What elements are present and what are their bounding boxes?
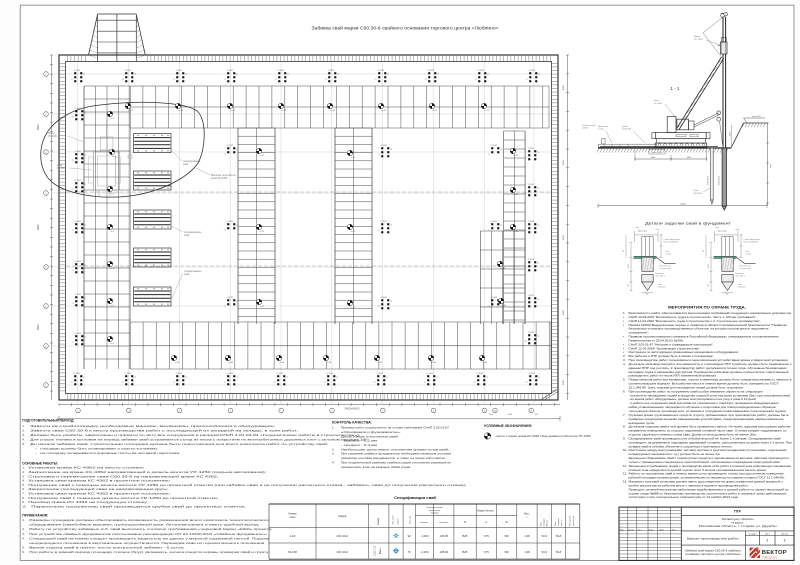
svg-text:Молот: Молот (48, 133, 56, 135)
svg-text:10.: 10. (22, 504, 26, 508)
svg-text:5 2002: 5 2002 (74, 373, 81, 375)
svg-text:12: 12 (185, 74, 187, 76)
svg-text:12: 12 (487, 74, 489, 76)
svg-text:17: 17 (526, 79, 528, 81)
svg-text:Детали заделки свай в фундамен: Детали заделки свай в фундамент (645, 221, 731, 226)
svg-text:-0,150: -0,150 (666, 253, 671, 255)
svg-text:2: 2 (128, 410, 129, 412)
svg-text:Ж: Ж (45, 267, 47, 269)
svg-text:8000: 8000 (563, 84, 565, 90)
svg-text:2.: 2. (22, 428, 25, 432)
svg-text:109,35: 109,35 (440, 534, 449, 538)
svg-text:6000: 6000 (508, 414, 512, 416)
svg-text:5 2002: 5 2002 (477, 373, 484, 375)
svg-text:12: 12 (286, 377, 288, 379)
svg-text:5 2002: 5 2002 (74, 70, 81, 72)
svg-text:8: 8 (433, 410, 434, 412)
svg-text:Стадия: Стадия (749, 534, 757, 536)
svg-text:69,8: 69,8 (556, 550, 562, 554)
svg-text:В25: В25 (463, 550, 468, 554)
svg-text:17: 17 (324, 382, 326, 384)
svg-text:17: 17 (122, 382, 124, 384)
svg-text:на площадку укладываются дорож: на площадку укладываются дорожные плиты … (40, 451, 180, 455)
svg-text:3000: 3000 (708, 264, 710, 268)
svg-text:отм.: отм. (656, 229, 660, 231)
svg-text:–: – (35, 447, 37, 451)
svg-text:17: 17 (72, 303, 74, 305)
svg-text:ж.б ростверк: ж.б ростверк (660, 268, 671, 270)
svg-text:Должны быть разбиты, закреплен: Должны быть разбиты, закреплены и принят… (30, 433, 360, 437)
svg-text:5 2002: 5 2002 (491, 221, 498, 223)
svg-text:5.: 5. (22, 546, 25, 550)
svg-text:12: 12 (500, 149, 502, 151)
svg-text:С60.30-6: С60.30-6 (738, 286, 746, 288)
svg-text:плиты: плиты (598, 129, 604, 131)
svg-text:12: 12 (236, 225, 238, 227)
svg-text:1.011.1-10: 1.011.1-10 (375, 545, 377, 557)
svg-text:отм.: отм. (736, 229, 740, 231)
svg-text:Кран: Кран (654, 100, 660, 102)
svg-text:12: 12 (236, 377, 238, 379)
svg-text:12: 12 (537, 336, 539, 338)
svg-text:12: 12 (84, 337, 86, 339)
svg-text:17: 17 (525, 193, 527, 195)
svg-text:отм.-1,350: отм.-1,350 (652, 152, 663, 154)
svg-text:9600: 9600 (37, 324, 40, 330)
svg-text:5 2002: 5 2002 (75, 108, 82, 110)
svg-text:12: 12 (84, 225, 86, 227)
svg-text:примеч., см: примеч., см (573, 515, 575, 526)
svg-text:12: 12 (83, 377, 85, 379)
svg-text:УР-1250: УР-1250 (694, 39, 703, 41)
svg-text:бетон В7,5: бетон В7,5 (736, 275, 745, 277)
svg-text:•: • (623, 323, 624, 327)
svg-text:12.: 12. (623, 472, 627, 476)
svg-text:С60.30-6: С60.30-6 (708, 175, 710, 185)
svg-text:3.: 3. (332, 452, 335, 456)
svg-text:17: 17 (71, 382, 73, 384)
svg-text:свай: свай (184, 234, 190, 237)
svg-text:12: 12 (236, 149, 238, 151)
svg-text:13.: 13. (623, 480, 627, 484)
svg-text:5 2002: 5 2002 (125, 70, 132, 72)
svg-text:5 2002: 5 2002 (278, 70, 285, 72)
svg-text:Г: Г (45, 385, 46, 387)
svg-text:Дорожные: Дорожные (598, 126, 609, 128)
svg-text:Вып.8 (350х350): Вып.8 (350х350) (664, 242, 679, 244)
svg-text:5 2002: 5 2002 (227, 70, 234, 72)
svg-text:12: 12 (500, 225, 502, 227)
svg-text:1-92: 1-92 (290, 534, 296, 538)
svg-text:Лист: Лист (765, 534, 770, 536)
svg-text:Вес,: Вес, (524, 512, 529, 516)
svg-text:17: 17 (224, 79, 226, 81)
svg-text:17: 17 (378, 306, 380, 308)
svg-text:С60.30-6: С60.30-6 (693, 193, 703, 195)
svg-text:ПРОЕКТ: ПРОЕКТ (762, 555, 777, 559)
svg-text:Подп.: Подп. (659, 529, 664, 531)
svg-text:Арматура: Арматура (718, 230, 728, 233)
svg-text:При работе в зимний период пло: При работе в зимний период площадку стоя… (29, 550, 269, 554)
svg-text:КОНТРОЛЬ КАЧЕСТВА:: КОНТРОЛЬ КАЧЕСТВА: (332, 421, 372, 425)
svg-text:- средних - 0,4 мм: - средних - 0,4 мм (341, 443, 377, 447)
svg-text:3.: 3. (22, 532, 25, 536)
svg-text:5.: 5. (623, 378, 626, 382)
svg-text:относит.: относит. (420, 522, 429, 524)
svg-text:8000: 8000 (563, 379, 565, 385)
svg-text:свай: свай (184, 273, 190, 276)
svg-text:ПГР: ПГР (734, 510, 741, 514)
svg-text:11.: 11. (623, 464, 627, 468)
svg-text:Лист: Лист (638, 529, 642, 531)
svg-text:МЕРОПРИЯТИЯ ПО ОХРАНЕ ТРУДА.: МЕРОПРИЯТИЯ ПО ОХРАНЕ ТРУДА. (668, 306, 746, 310)
svg-text:12: 12 (84, 298, 86, 300)
svg-text:5 2002: 5 2002 (227, 145, 234, 147)
svg-text:17: 17 (275, 79, 277, 81)
svg-text:5 2002: 5 2002 (227, 373, 234, 375)
svg-text:12: 12 (84, 265, 86, 267)
svg-text:неоднородного положения в верт: неоднородного положения в вертикальное о… (29, 541, 264, 545)
svg-text:17: 17 (526, 382, 528, 384)
svg-text:ж.б ростверк: ж.б ростверк (740, 268, 751, 270)
svg-text:1,38: 1,38 (524, 534, 530, 538)
svg-text:12: 12 (134, 377, 136, 379)
svg-text:5 2002: 5 2002 (75, 180, 82, 182)
svg-text:забивки: забивки (431, 513, 440, 515)
svg-text:54000=54000: 54000=54000 (345, 407, 360, 410)
svg-text:Следующей свай на номер следуе: Следующей свай на номер следует производ… (29, 536, 269, 540)
svg-text:17: 17 (173, 382, 175, 384)
svg-text:300: 300 (726, 294, 729, 296)
svg-text:17: 17 (224, 382, 226, 384)
svg-text:3000: 3000 (489, 414, 493, 416)
svg-text:11: 11 (530, 410, 532, 412)
svg-text:Листов: Листов (781, 534, 789, 536)
svg-text:12: 12 (390, 301, 392, 303)
svg-text:17: 17 (72, 189, 74, 191)
svg-text:17: 17 (71, 79, 73, 81)
svg-text:12: 12 (436, 377, 438, 379)
svg-text:При срывании свайных фундамент: При срывании свайных фундаментов необход… (341, 452, 451, 456)
svg-text:108,90: 108,90 (440, 550, 449, 554)
svg-text:5: 5 (281, 410, 282, 412)
svg-text:До начала забивки свай, строит: До начала забивки свай, строительная пло… (30, 442, 328, 446)
svg-text:Отметка головы: Отметка головы (426, 507, 443, 509)
svg-text:1 - 1: 1 - 1 (670, 86, 680, 91)
svg-text:Завезти сваи С60.30-6 к месту: Завезти сваи С60.30-6 к месту производст… (30, 428, 298, 432)
svg-text:нагрузка: нагрузка (544, 518, 546, 526)
svg-text:6.: 6. (623, 389, 626, 393)
svg-text:17: 17 (72, 160, 74, 162)
svg-text:12: 12 (287, 74, 289, 76)
svg-text:12: 12 (83, 74, 85, 76)
svg-text:оборудования (сваебойные машин: оборудования (сваебойные машины, грузопо… (29, 523, 259, 527)
svg-text:4.: 4. (22, 536, 25, 540)
svg-text:W6: W6 (504, 534, 509, 538)
svg-text:Вып.8 (350х350): Вып.8 (350х350) (744, 242, 759, 244)
svg-text:свай: свай (183, 163, 189, 166)
svg-text:абсолют.: абсолют. (439, 522, 448, 524)
svg-text:17: 17 (374, 382, 376, 384)
svg-text:250: 250 (708, 284, 710, 287)
svg-text:Вып.1: Вып.1 (380, 547, 382, 554)
svg-text:17: 17 (525, 230, 527, 232)
svg-text:-1,000: -1,000 (421, 534, 429, 538)
svg-text:•: • (623, 335, 624, 339)
svg-text:5 2002: 5 2002 (529, 70, 536, 72)
svg-text:17: 17 (375, 79, 377, 81)
svg-text:12: 12 (538, 377, 540, 379)
svg-text:Кол.уч: Кол.уч (629, 529, 635, 531)
svg-text:ПРИМЕЧАНИЯ:: ПРИМЕЧАНИЯ: (22, 514, 48, 518)
svg-text:12: 12 (538, 74, 540, 76)
svg-text:17: 17 (274, 382, 276, 384)
svg-text:5 2002: 5 2002 (427, 373, 434, 375)
svg-text:17: 17 (525, 157, 527, 159)
svg-text:основания торгового центра «Лю: основания торгового центра «Люблино» (685, 554, 742, 556)
svg-text:КС-4362: КС-4362 (654, 103, 663, 105)
svg-text:Допустимые отклонения свай:: Допустимые отклонения свай: (341, 434, 399, 438)
svg-text:5 2002: 5 2002 (75, 261, 82, 263)
svg-text:3.: 3. (22, 433, 25, 437)
svg-text:17: 17 (122, 79, 124, 81)
svg-text:12: 12 (337, 74, 339, 76)
svg-text:3000: 3000 (628, 264, 630, 268)
svg-text:F75: F75 (484, 550, 489, 554)
svg-text:12: 12 (437, 74, 439, 76)
svg-text:КС-4362: КС-4362 (57, 168, 67, 170)
svg-text:4: 4 (230, 410, 231, 412)
svg-text:17: 17 (525, 268, 527, 270)
svg-text:W6: W6 (504, 550, 509, 554)
svg-text:108.60: 108.60 (582, 128, 589, 130)
svg-text:Для спуска техники в котлован: Для спуска техники в котлован на период … (30, 438, 368, 442)
svg-text:Сваи: Сваи (693, 190, 699, 192)
svg-text:сущ.: сущ. (770, 163, 772, 168)
svg-text:5 2002: 5 2002 (491, 297, 498, 299)
svg-text:Арматура: Арматура (638, 230, 648, 233)
svg-text:4.: 4. (22, 438, 25, 442)
svg-text:Усл.особ.: Усл.особ. (393, 514, 395, 524)
svg-text:54,9: 54,9 (541, 550, 547, 554)
svg-text:8.: 8. (623, 425, 626, 429)
svg-text:5 2002: 5 2002 (478, 70, 485, 72)
svg-text:отм.0,00: отм.0,00 (752, 116, 761, 118)
svg-text:1.: 1. (22, 518, 25, 522)
svg-text:9.: 9. (623, 436, 626, 440)
svg-text:1.: 1. (332, 426, 335, 430)
svg-text:17: 17 (425, 79, 427, 81)
svg-text:12: 12 (390, 225, 392, 227)
svg-text:8000: 8000 (563, 159, 565, 165)
svg-text:5 2002: 5 2002 (378, 70, 385, 72)
svg-text:9600: 9600 (37, 124, 40, 130)
svg-text:5.: 5. (22, 442, 25, 446)
svg-text:17: 17 (325, 79, 327, 81)
svg-text:17: 17 (72, 270, 74, 272)
svg-text:УСЛОВНЫЕ ОБОЗНАЧЕНИЯ:: УСЛОВНЫЕ ОБОЗНАЧЕНИЯ: (484, 424, 532, 428)
svg-text:5 2002: 5 2002 (528, 184, 535, 186)
svg-text:92: 92 (408, 534, 412, 538)
svg-text:17: 17 (525, 341, 527, 343)
svg-text:–: – (35, 451, 37, 455)
svg-text:Расстояние,: Расстояние, (570, 515, 572, 526)
svg-text:17: 17 (72, 342, 74, 344)
svg-text:крана КС-4362: крана КС-4362 (211, 177, 228, 180)
svg-text:17: 17 (424, 382, 426, 384)
svg-text:5 2002: 5 2002 (328, 70, 335, 72)
svg-text:69,8: 69,8 (556, 534, 562, 538)
svg-text:5 2002: 5 2002 (381, 297, 388, 299)
svg-text:4.: 4. (332, 460, 335, 464)
svg-text:5 2002: 5 2002 (125, 373, 132, 375)
svg-text:5 2002: 5 2002 (528, 332, 535, 334)
svg-text:Работу по устройству забивных: Работу по устройству забивных ж.б. свай … (29, 527, 272, 531)
svg-text:1,38: 1,38 (524, 550, 530, 554)
svg-text:17: 17 (72, 230, 74, 232)
svg-text:6.: 6. (22, 550, 25, 554)
svg-text:3: 3 (179, 410, 180, 412)
svg-text:2: 2 (766, 539, 768, 543)
svg-text:Расч.: Расч. (541, 521, 543, 526)
svg-text:12: 12 (386, 377, 388, 379)
svg-text:12: 12 (537, 188, 539, 190)
svg-text:17: 17 (173, 79, 175, 81)
svg-text:5 2002: 5 2002 (227, 221, 234, 223)
svg-text:Кол.,шт.: Кол.,шт. (409, 515, 411, 523)
svg-text:250: 250 (628, 284, 630, 287)
svg-text:1: 1 (77, 410, 78, 412)
svg-text:5 2002: 5 2002 (277, 373, 284, 375)
svg-text:12: 12 (185, 377, 187, 379)
svg-text:25000: 25000 (680, 203, 687, 205)
svg-text:17: 17 (474, 382, 476, 384)
svg-text:С60.30-6: С60.30-6 (719, 175, 721, 185)
svg-text:2000х600: 2000х600 (622, 129, 632, 131)
svg-text:5 2002: 5 2002 (176, 373, 183, 375)
svg-text:ОСНОВНЫЕ РАБОТЫ:: ОСНОВНЫЕ РАБОТЫ: (22, 461, 58, 465)
svg-text:Паралельно погружению свай про: Паралельно погружению свай производится … (31, 504, 246, 508)
svg-text:17: 17 (72, 117, 74, 119)
svg-text:сваи: сваи (290, 516, 296, 519)
svg-text:12: 12 (387, 74, 389, 76)
svg-text:5 2002: 5 2002 (75, 221, 82, 223)
svg-text:4.: 4. (623, 362, 626, 366)
svg-text:безопасности опасных производс: безопасности опасных производственных об… (629, 327, 769, 331)
svg-text:2: 2 (784, 539, 786, 543)
svg-text:Молот: Молот (694, 36, 701, 38)
svg-text:Забивка свай марки С60.30-6 св: Забивка свай марки С60.30-6 свайного (685, 550, 742, 553)
svg-text:Расч.: Расч. (555, 521, 557, 526)
svg-text:Кран: Кран (57, 165, 63, 167)
svg-text:Забивка свай марки С60.30-6 св: Забивка свай марки С60.30-6 свайного осн… (312, 25, 499, 31)
svg-text:УР-1250: УР-1250 (48, 136, 58, 138)
svg-text:12: 12 (390, 149, 392, 151)
svg-text:5 2002: 5 2002 (381, 221, 388, 223)
svg-text:9: 9 (484, 410, 485, 412)
svg-text:12: 12 (84, 155, 86, 157)
svg-text:Марка бетона: Марка бетона (477, 510, 494, 513)
svg-text:Вел.,тс: Вел.,тс (547, 520, 549, 526)
svg-text:12: 12 (486, 377, 488, 379)
svg-text:С60.30-6: С60.30-6 (658, 286, 666, 288)
svg-text:5 2002: 5 2002 (327, 373, 334, 375)
svg-text:900: 900 (535, 414, 538, 416)
svg-text:Московская область, г. Старая: Московская область, г. Старая ул. Дружбы (699, 525, 777, 528)
svg-text:17: 17 (488, 306, 490, 308)
svg-text:17: 17 (224, 230, 226, 232)
svg-text:F75: F75 (484, 534, 489, 538)
svg-text:9600: 9600 (37, 224, 40, 230)
svg-text:12: 12 (84, 112, 86, 114)
svg-text:5 2002: 5 2002 (491, 145, 498, 147)
svg-text:Время отдыха свай в грунте, по: Время отдыха свай в грунте, после контро… (29, 546, 184, 550)
svg-text:Марка: Марка (338, 514, 346, 518)
svg-text:превышать 1см на каждые 100м р: превышать 1см на каждые 100м ряда. (341, 465, 411, 469)
svg-text:8000: 8000 (563, 309, 565, 315)
svg-text:5 2002: 5 2002 (529, 373, 536, 375)
svg-text:5 2002: 5 2002 (428, 70, 435, 72)
svg-text:50: 50 (623, 250, 625, 252)
svg-text:12: 12 (336, 377, 338, 379)
svg-text:5 2002: 5 2002 (528, 148, 535, 150)
svg-text:В25: В25 (463, 534, 468, 538)
svg-text:теплотрасс и при отрицательных: теплотрасс и при отрицательных температу… (629, 495, 739, 499)
svg-text:50: 50 (703, 250, 705, 252)
svg-text:12: 12 (537, 263, 539, 265)
svg-text:10: 10 (494, 410, 496, 412)
svg-text:17: 17 (224, 154, 226, 156)
svg-text:5 2002: 5 2002 (528, 221, 535, 223)
svg-text:-0,150: -0,150 (746, 253, 751, 255)
svg-text:12: 12 (537, 225, 539, 227)
svg-text:Завезти на стройплощадку необх: Завезти на стройплощадку необходимые маш… (30, 424, 275, 428)
svg-text:8000: 8000 (563, 234, 565, 240)
svg-text:6: 6 (331, 410, 332, 412)
svg-text:5 2002: 5 2002 (528, 259, 535, 261)
svg-text:17: 17 (525, 304, 527, 306)
svg-text:обозн.: обозн. (397, 518, 399, 525)
svg-text:сваи после: сваи после (429, 510, 441, 512)
svg-text:5 2002: 5 2002 (528, 295, 535, 297)
svg-text:отм.: отм. (636, 227, 640, 229)
svg-text:площадки должны быть спланиров: площадки должны быть спланированы и отры… (40, 447, 158, 451)
svg-text:N док.: N док. (649, 529, 655, 531)
svg-text:С60.30-6: С60.30-6 (337, 534, 349, 538)
svg-text:10.: 10. (623, 448, 627, 452)
svg-text:5 2002: 5 2002 (75, 151, 82, 153)
svg-text:93-168: 93-168 (288, 550, 297, 554)
svg-text:12: 12 (84, 184, 86, 186)
svg-text:17: 17 (475, 79, 477, 81)
svg-text:5 2002: 5 2002 (227, 297, 234, 299)
svg-text:5 2002: 5 2002 (381, 145, 388, 147)
svg-text:17: 17 (378, 230, 380, 232)
svg-text:300: 300 (646, 294, 649, 296)
svg-text:Время производства работ: Время производства работ (687, 538, 741, 541)
svg-text:7.: 7. (623, 413, 626, 417)
svg-text:17: 17 (378, 154, 380, 156)
svg-text:Размеры площадки должны обеспе: Размеры площадки должны обеспечивать воз… (29, 518, 269, 522)
svg-text:5 2002: 5 2002 (75, 333, 82, 335)
svg-text:ПОДГОТОВИТЕЛЬНЫЙ ПЕРИОД:: ПОДГОТОВИТЕЛЬНЫЙ ПЕРИОД: (22, 419, 74, 423)
svg-text:5 2002: 5 2002 (75, 294, 82, 296)
svg-text:-2,250: -2,250 (421, 550, 429, 554)
svg-text:3000: 3000 (729, 132, 731, 136)
svg-text:Тумба: Тумба (622, 126, 629, 128)
svg-text:17: 17 (488, 154, 490, 156)
svg-text:5 2002: 5 2002 (377, 373, 384, 375)
